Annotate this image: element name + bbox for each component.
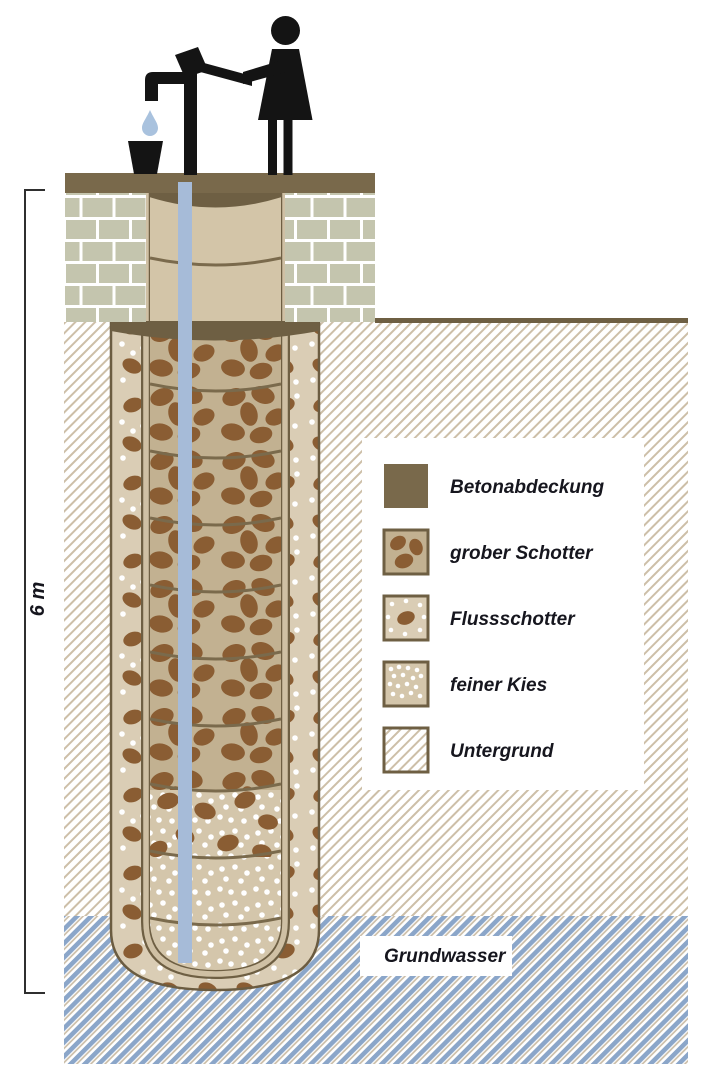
legend-label-grober-schotter: grober Schotter	[450, 544, 593, 563]
ground-surface-line	[375, 318, 688, 323]
measurement-label: 6 m	[28, 569, 48, 629]
pump-spout	[145, 72, 184, 101]
well-pipe	[178, 182, 192, 963]
well-diagram-artwork	[0, 0, 720, 1089]
legend-label-flussschotter: Flussschotter	[450, 610, 575, 629]
concrete-cover-swatch	[384, 464, 428, 508]
coarse-gravel-swatch	[384, 530, 428, 574]
fine-gravel-swatch	[384, 662, 428, 706]
legend-label-betonabdeckung: Betonabdeckung	[450, 478, 604, 497]
person-leg	[284, 120, 293, 175]
legend-label-feiner-kies: feiner Kies	[450, 676, 547, 695]
person-leg	[268, 120, 277, 175]
shaft-fill	[146, 190, 285, 982]
concrete-cover	[65, 173, 375, 193]
river-gravel-swatch	[384, 596, 428, 640]
legend-label-untergrund: Untergrund	[450, 742, 553, 761]
person-head	[271, 16, 300, 45]
water-drop-icon	[142, 110, 158, 136]
hand-pump-icon	[145, 47, 252, 175]
person-icon	[243, 16, 313, 175]
well-cross-section-diagram: 6 m Betonabdeckung grober Schotter Fluss…	[0, 0, 720, 1089]
groundwater-label: Grundwasser	[384, 947, 505, 966]
bucket-icon	[128, 141, 163, 174]
subsoil-hatch-swatch	[384, 728, 428, 772]
